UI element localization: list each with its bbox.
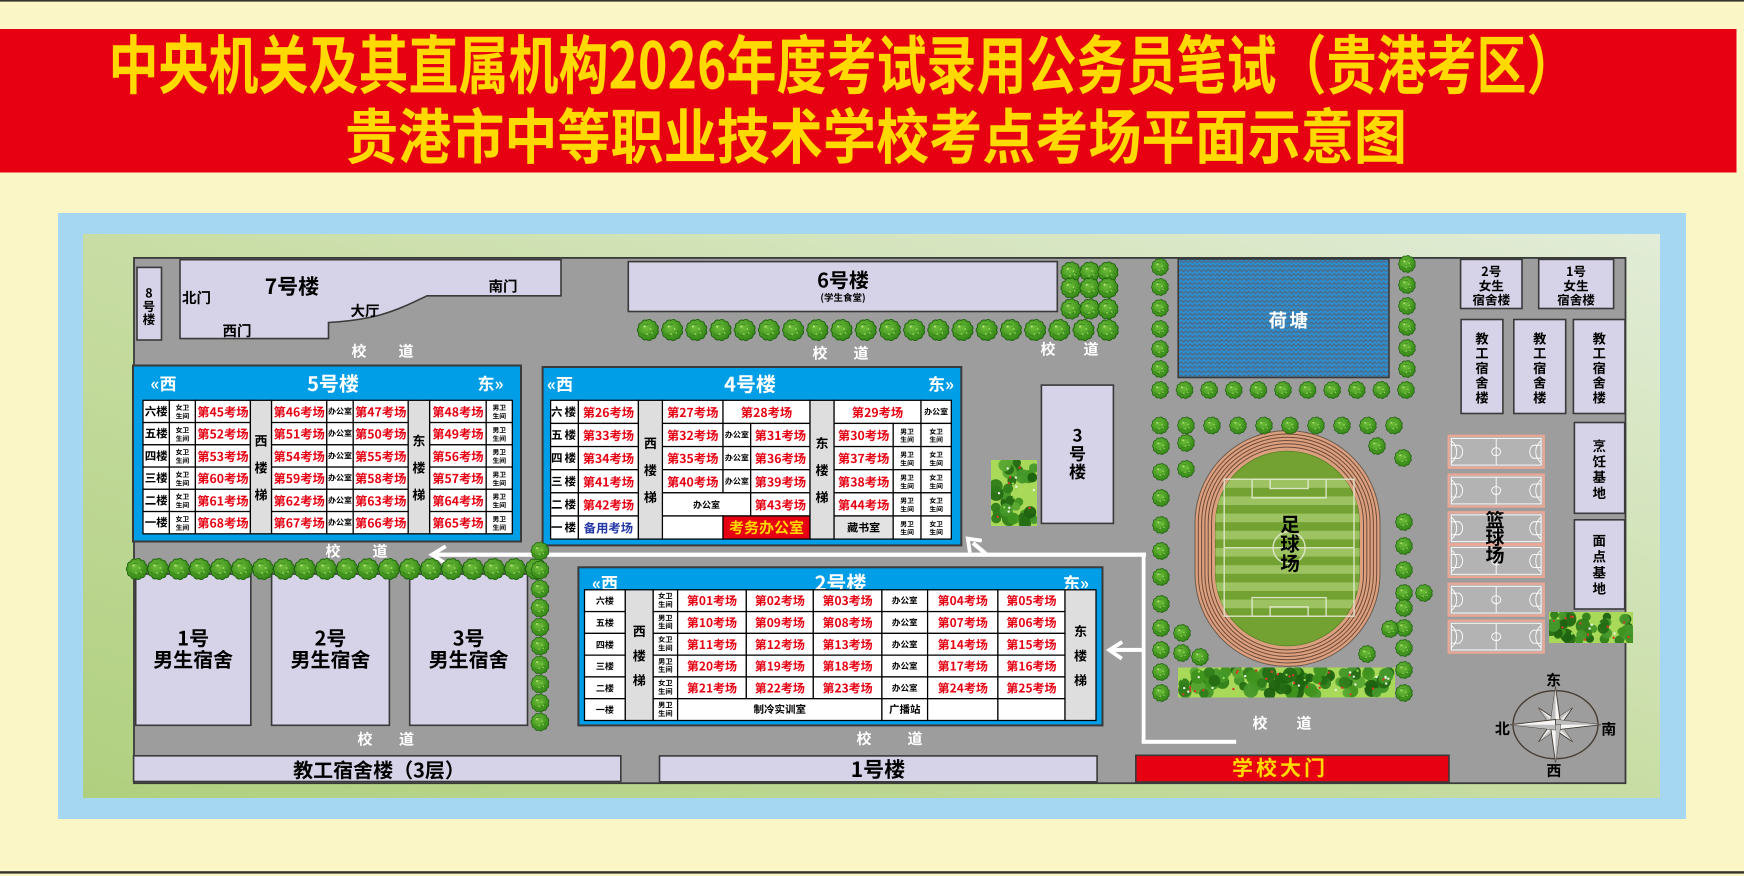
svg-text:梯: 梯 [254,485,267,504]
svg-text:第68考场: 第68考场 [197,514,248,532]
svg-text:第37考场: 第37考场 [838,449,889,467]
svg-text:第47考场: 第47考场 [355,402,406,420]
svg-text:第65考场: 第65考场 [432,514,483,532]
svg-text:生间: 生间 [929,527,943,537]
svg-text:第35考场: 第35考场 [667,449,718,467]
svg-text:生间: 生间 [176,433,190,443]
svg-text:二楼: 二楼 [145,492,168,508]
svg-text:生间: 生间 [492,500,506,510]
svg-text:第38考场: 第38考场 [838,472,889,490]
svg-text:道: 道 [372,541,387,562]
svg-text:二楼: 二楼 [596,681,614,694]
svg-text:第54考场: 第54考场 [273,447,324,465]
svg-text:三楼: 三楼 [551,473,578,489]
svg-text:办公室: 办公室 [328,428,352,439]
svg-text:第57考场: 第57考场 [432,469,483,487]
svg-text:第41考场: 第41考场 [583,472,634,490]
svg-text:办公室: 办公室 [725,476,749,487]
svg-text:备用考场: 备用考场 [584,519,633,537]
svg-text:第59考场: 第59考场 [273,469,324,487]
svg-text:第15考场: 第15考场 [1006,636,1056,653]
svg-text:办公室: 办公室 [892,638,918,650]
svg-text:生间: 生间 [900,527,914,537]
svg-text:一楼: 一楼 [145,515,168,531]
svg-text:场: 场 [1485,541,1504,568]
svg-text:校: 校 [1040,339,1055,360]
svg-text:办公室: 办公室 [328,450,352,461]
svg-text:四楼: 四楼 [596,638,614,651]
svg-text:第56考场: 第56考场 [432,447,483,465]
svg-text:南门: 南门 [489,276,518,297]
svg-text:第09考场: 第09考场 [755,614,805,631]
svg-text:生间: 生间 [176,455,190,465]
svg-text:办公室: 办公室 [892,616,918,628]
svg-text:西: 西 [644,433,657,452]
svg-text:生间: 生间 [176,500,190,510]
svg-text:第36考场: 第36考场 [755,449,806,467]
svg-text:第61考场: 第61考场 [197,491,248,509]
svg-text:生间: 生间 [929,504,943,514]
svg-text:贵港市中等职业技术学校考点考场平面示意图: 贵港市中等职业技术学校考点考场平面示意图 [345,90,1407,177]
svg-text:第51考场: 第51考场 [273,425,324,443]
svg-text:第13考场: 第13考场 [823,636,873,653]
svg-text:宿舍楼: 宿舍楼 [1472,290,1510,309]
svg-text:第02考场: 第02考场 [755,592,805,609]
svg-text:第46考场: 第46考场 [273,402,324,420]
svg-text:楼: 楼 [644,460,657,479]
svg-text:第27考场: 第27考场 [667,403,718,421]
svg-text:生间: 生间 [900,457,914,467]
svg-text:生间: 生间 [929,457,943,467]
svg-text:第53考场: 第53考场 [197,447,248,465]
svg-text:第55考场: 第55考场 [355,447,406,465]
svg-text:教工宿舍楼（3层）: 教工宿舍楼（3层） [293,755,465,784]
svg-text:生间: 生间 [658,643,672,653]
svg-text:制冷实训室: 制冷实训室 [754,702,807,717]
svg-text:(学生食堂): (学生食堂) [820,290,865,304]
svg-text:楼: 楼 [815,460,828,479]
svg-text:第23考场: 第23考场 [823,679,873,696]
svg-text:北: 北 [1495,718,1510,739]
svg-text:7号楼: 7号楼 [265,271,319,301]
svg-text:第44考场: 第44考场 [838,495,889,513]
svg-text:生间: 生间 [176,522,190,532]
svg-text:生间: 生间 [658,622,672,632]
svg-text:第20考场: 第20考场 [687,658,737,675]
svg-text:第42考场: 第42考场 [583,495,634,513]
svg-text:第30考场: 第30考场 [838,426,889,444]
svg-text:校: 校 [812,343,827,364]
svg-text:生间: 生间 [176,477,190,487]
svg-text:第66考场: 第66考场 [355,514,406,532]
svg-text:第48考场: 第48考场 [432,402,483,420]
svg-text:道: 道 [1296,713,1311,734]
svg-text:办公室: 办公室 [328,406,352,417]
svg-text:宿舍楼: 宿舍楼 [1557,290,1595,309]
svg-text:第19考场: 第19考场 [755,658,805,675]
svg-text:5号楼: 5号楼 [307,368,359,397]
svg-text:学校大门: 学校大门 [1232,753,1328,783]
svg-text:校: 校 [1252,713,1267,734]
svg-text:一楼: 一楼 [551,520,578,536]
svg-text:第04考场: 第04考场 [938,592,988,609]
svg-text:办公室: 办公室 [328,517,352,528]
svg-text:生间: 生间 [492,433,506,443]
svg-text:北门: 北门 [182,287,211,308]
svg-text:生间: 生间 [492,477,506,487]
svg-text:1号楼: 1号楼 [851,754,905,784]
svg-text:办公室: 办公室 [693,498,720,511]
svg-text:楼: 楼 [1475,387,1488,406]
svg-text:第40考场: 第40考场 [667,472,718,490]
svg-text:第39考场: 第39考场 [755,472,806,490]
svg-text:生间: 生间 [658,665,672,675]
svg-text:三楼: 三楼 [145,470,168,486]
svg-text:第32考场: 第32考场 [667,426,718,444]
svg-text:楼: 楼 [254,458,267,477]
svg-text:东: 东 [815,433,828,452]
svg-text:道: 道 [907,728,922,749]
svg-text:生间: 生间 [492,411,506,421]
svg-text:道: 道 [398,341,413,362]
svg-text:第12考场: 第12考场 [755,636,805,653]
svg-text:第17考场: 第17考场 [938,658,988,675]
svg-text:第05考场: 第05考场 [1006,592,1056,609]
svg-text:«西: «西 [547,371,573,396]
svg-text:梯: 梯 [815,487,828,506]
svg-text:道: 道 [399,729,414,750]
svg-text:六楼: 六楼 [145,403,168,419]
svg-text:楼: 楼 [143,309,156,328]
svg-text:东: 东 [1546,670,1561,691]
svg-text:第11考场: 第11考场 [687,636,737,653]
svg-text:校: 校 [357,729,372,750]
svg-text:第50考场: 第50考场 [355,425,406,443]
svg-text:4号楼: 4号楼 [724,369,776,398]
svg-text:第01考场: 第01考场 [687,592,737,609]
svg-text:西: 西 [633,621,646,640]
svg-text:六楼: 六楼 [551,404,578,420]
svg-text:第33考场: 第33考场 [583,426,634,444]
svg-text:三楼: 三楼 [596,660,614,673]
svg-text:第03考场: 第03考场 [823,592,873,609]
svg-text:道: 道 [853,343,868,364]
svg-text:«西: «西 [151,370,177,395]
svg-text:第24考场: 第24考场 [938,679,988,696]
svg-text:男生宿舍: 男生宿舍 [291,644,371,673]
svg-text:第25考场: 第25考场 [1006,679,1056,696]
svg-text:西: 西 [1546,760,1561,781]
svg-text:五楼: 五楼 [145,426,168,442]
svg-text:五楼: 五楼 [596,616,614,629]
svg-text:生间: 生间 [658,687,672,697]
svg-text:生间: 生间 [658,709,672,719]
svg-text:地: 地 [1593,482,1607,502]
svg-text:生间: 生间 [900,480,914,490]
svg-text:第34考场: 第34考场 [583,449,634,467]
svg-text:校: 校 [856,728,871,749]
svg-text:考务办公室: 考务办公室 [729,517,804,538]
svg-text:四楼: 四楼 [551,450,578,466]
svg-text:第14考场: 第14考场 [938,636,988,653]
svg-text:楼: 楼 [412,458,425,477]
svg-text:东»: 东» [478,370,504,395]
svg-text:第07考场: 第07考场 [938,614,988,631]
svg-text:办公室: 办公室 [924,406,948,417]
svg-text:荷塘: 荷塘 [1268,307,1310,333]
svg-text:生间: 生间 [176,411,190,421]
svg-text:第49考场: 第49考场 [432,425,483,443]
svg-text:二楼: 二楼 [551,496,578,512]
svg-text:楼: 楼 [1593,387,1606,406]
svg-text:梯: 梯 [633,670,646,689]
svg-text:第52考场: 第52考场 [197,425,248,443]
svg-text:第43考场: 第43考场 [755,495,806,513]
svg-text:场: 场 [1280,548,1300,577]
svg-text:生间: 生间 [929,480,943,490]
svg-text:生间: 生间 [900,434,914,444]
svg-text:第45考场: 第45考场 [197,402,248,420]
svg-text:藏书室: 藏书室 [847,520,880,536]
svg-text:男生宿舍: 男生宿舍 [153,644,233,673]
svg-text:第29考场: 第29考场 [852,403,903,421]
svg-text:梯: 梯 [644,487,657,506]
svg-text:第62考场: 第62考场 [273,491,324,509]
svg-text:生间: 生间 [900,504,914,514]
svg-text:四楼: 四楼 [145,448,168,464]
svg-text:楼: 楼 [1069,458,1086,483]
svg-text:第21考场: 第21考场 [687,679,737,696]
svg-text:校: 校 [351,341,366,362]
svg-text:一楼: 一楼 [596,703,614,716]
svg-text:第58考场: 第58考场 [355,469,406,487]
svg-text:东: 东 [412,431,425,450]
svg-text:第22考场: 第22考场 [755,679,805,696]
svg-text:生间: 生间 [929,434,943,444]
svg-text:第16考场: 第16考场 [1006,658,1056,675]
svg-text:第08考场: 第08考场 [823,614,873,631]
svg-text:生间: 生间 [492,522,506,532]
svg-text:东: 东 [1074,621,1087,640]
svg-text:第64考场: 第64考场 [432,491,483,509]
svg-text:五楼: 五楼 [551,427,578,443]
svg-text:东»: 东» [928,371,954,396]
svg-text:六楼: 六楼 [596,594,614,607]
svg-text:第26考场: 第26考场 [583,403,634,421]
svg-text:第18考场: 第18考场 [823,658,873,675]
svg-text:第60考场: 第60考场 [197,469,248,487]
svg-text:西: 西 [254,431,267,450]
svg-text:生间: 生间 [658,600,672,610]
svg-text:第63考场: 第63考场 [355,491,406,509]
svg-text:第31考场: 第31考场 [755,426,806,444]
svg-text:楼: 楼 [1074,646,1087,665]
svg-text:广播站: 广播站 [889,702,921,717]
svg-text:地: 地 [1593,578,1607,598]
svg-text:第06考场: 第06考场 [1006,614,1056,631]
svg-text:生间: 生间 [492,455,506,465]
svg-text:办公室: 办公室 [892,660,918,672]
svg-text:办公室: 办公室 [328,473,352,484]
svg-text:办公室: 办公室 [328,495,352,506]
svg-text:第67考场: 第67考场 [273,514,324,532]
svg-text:办公室: 办公室 [725,429,749,440]
svg-text:梯: 梯 [1074,670,1087,689]
svg-text:楼: 楼 [1533,387,1546,406]
svg-text:办公室: 办公室 [892,682,918,694]
svg-text:办公室: 办公室 [725,453,749,464]
svg-text:办公室: 办公室 [892,595,918,607]
svg-text:第10考场: 第10考场 [687,614,737,631]
svg-text:南: 南 [1601,719,1616,740]
svg-text:梯: 梯 [412,485,425,504]
svg-text:大厅: 大厅 [351,300,380,321]
svg-text:楼: 楼 [633,646,646,665]
svg-text:西门: 西门 [223,320,252,341]
svg-text:男生宿舍: 男生宿舍 [429,644,509,673]
svg-text:第28考场: 第28考场 [741,403,792,421]
svg-text:道: 道 [1083,339,1098,360]
